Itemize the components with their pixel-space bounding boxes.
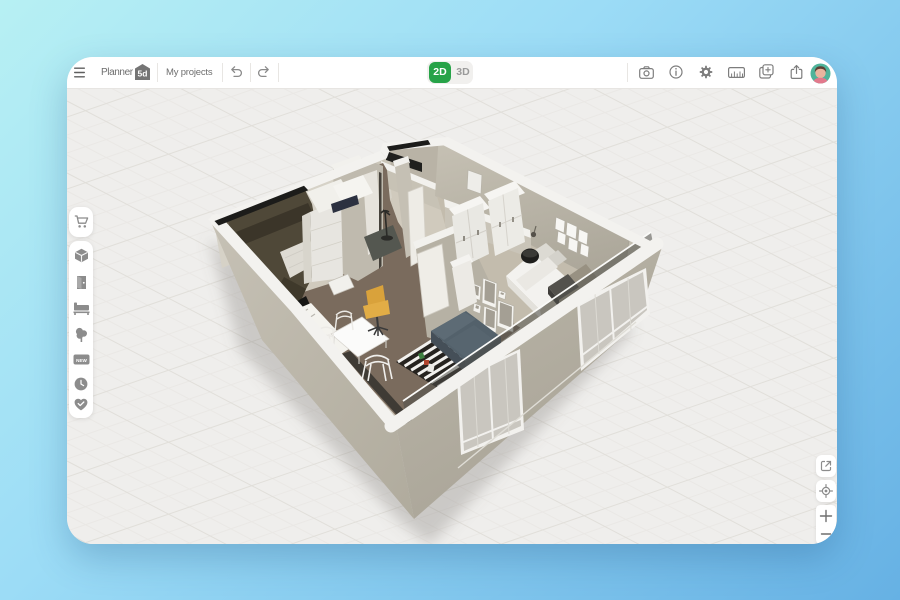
svg-text:NEW: NEW [76, 358, 87, 363]
svg-text:5d: 5d [138, 69, 148, 79]
